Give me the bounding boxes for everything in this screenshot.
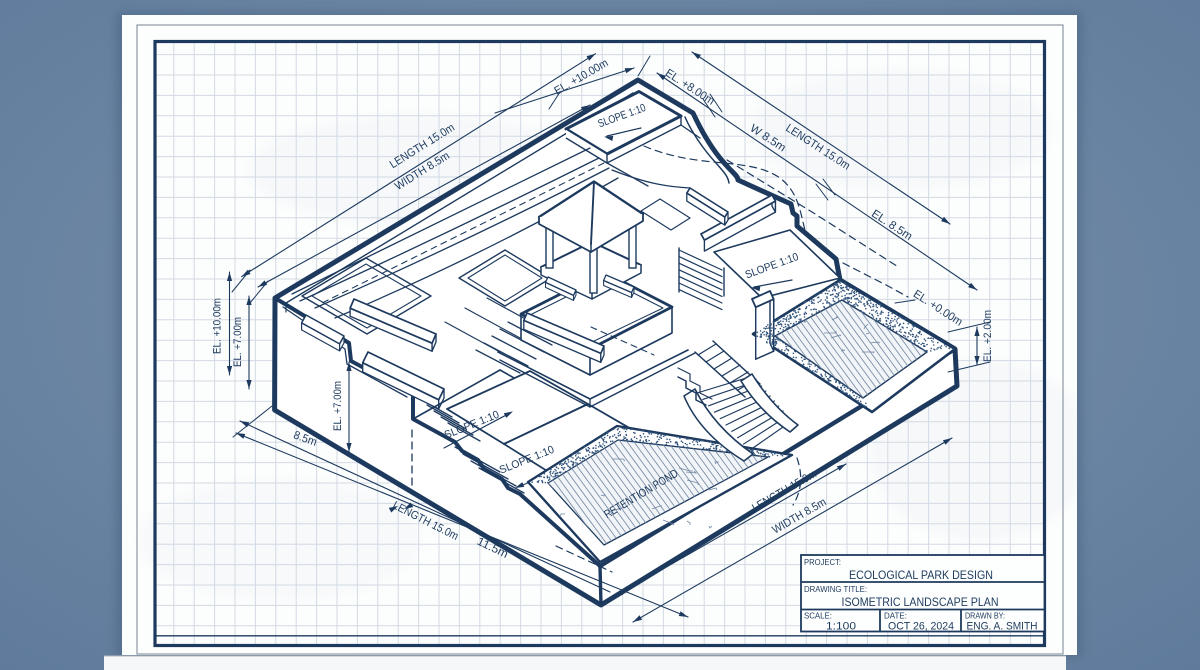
svg-text:EL. +7.00m: EL. +7.00m xyxy=(332,381,344,431)
svg-text:ISOMETRIC LANDSCAPE PLAN: ISOMETRIC LANDSCAPE PLAN xyxy=(842,595,999,609)
svg-text:EL. +2.00m: EL. +2.00m xyxy=(982,310,994,362)
svg-text:DATE:: DATE: xyxy=(884,612,907,621)
svg-text:ECOLOGICAL PARK DESIGN: ECOLOGICAL PARK DESIGN xyxy=(849,568,993,582)
svg-text:EL. +7.00m: EL. +7.00m xyxy=(232,317,244,367)
svg-text:DRAWING TITLE:: DRAWING TITLE: xyxy=(804,585,867,594)
svg-text:OCT 26, 2024: OCT 26, 2024 xyxy=(888,621,954,633)
svg-text:DRAWN BY:: DRAWN BY: xyxy=(965,612,1005,621)
svg-text:1:100: 1:100 xyxy=(826,621,856,633)
svg-text:EL. +10.00m: EL. +10.00m xyxy=(212,298,224,354)
svg-text:SCALE:: SCALE: xyxy=(804,612,832,621)
svg-text:ENG. A. SMITH: ENG. A. SMITH xyxy=(967,621,1038,633)
svg-text:PROJECT:: PROJECT: xyxy=(804,558,841,567)
